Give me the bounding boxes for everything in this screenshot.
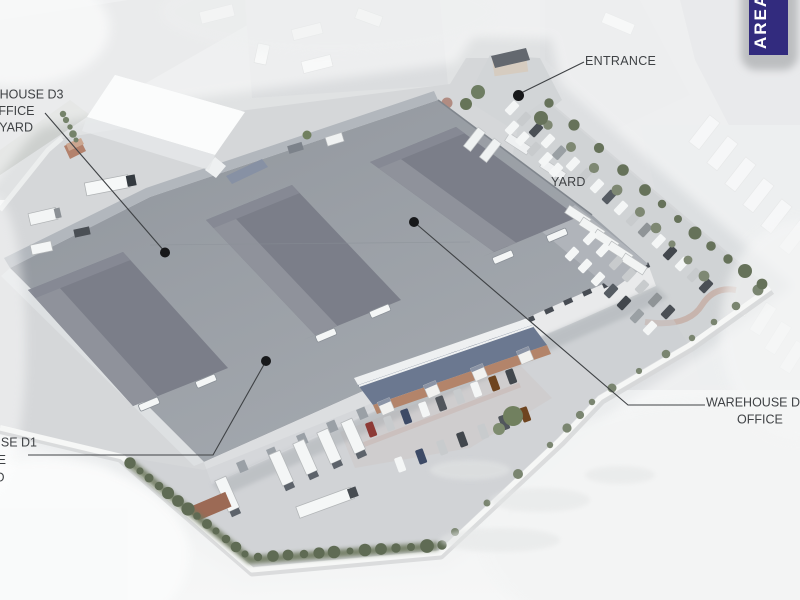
svg-text:WAREHOUSE D1: WAREHOUSE D1: [0, 436, 37, 450]
svg-text:YARD: YARD: [0, 471, 5, 485]
svg-text:ENTRANCE: ENTRANCE: [585, 54, 656, 68]
svg-text:WAREHOUSE D2: WAREHOUSE D2: [706, 396, 800, 410]
svg-text:AREA: AREA: [751, 0, 770, 49]
svg-text:OFFICE: OFFICE: [0, 453, 6, 467]
svg-text:OFFICE: OFFICE: [737, 413, 783, 427]
svg-text:YARD: YARD: [551, 175, 586, 189]
svg-text:WAREHOUSE D3: WAREHOUSE D3: [0, 88, 64, 102]
svg-text:YARD: YARD: [0, 121, 33, 135]
svg-text:OFFICE: OFFICE: [0, 104, 35, 118]
